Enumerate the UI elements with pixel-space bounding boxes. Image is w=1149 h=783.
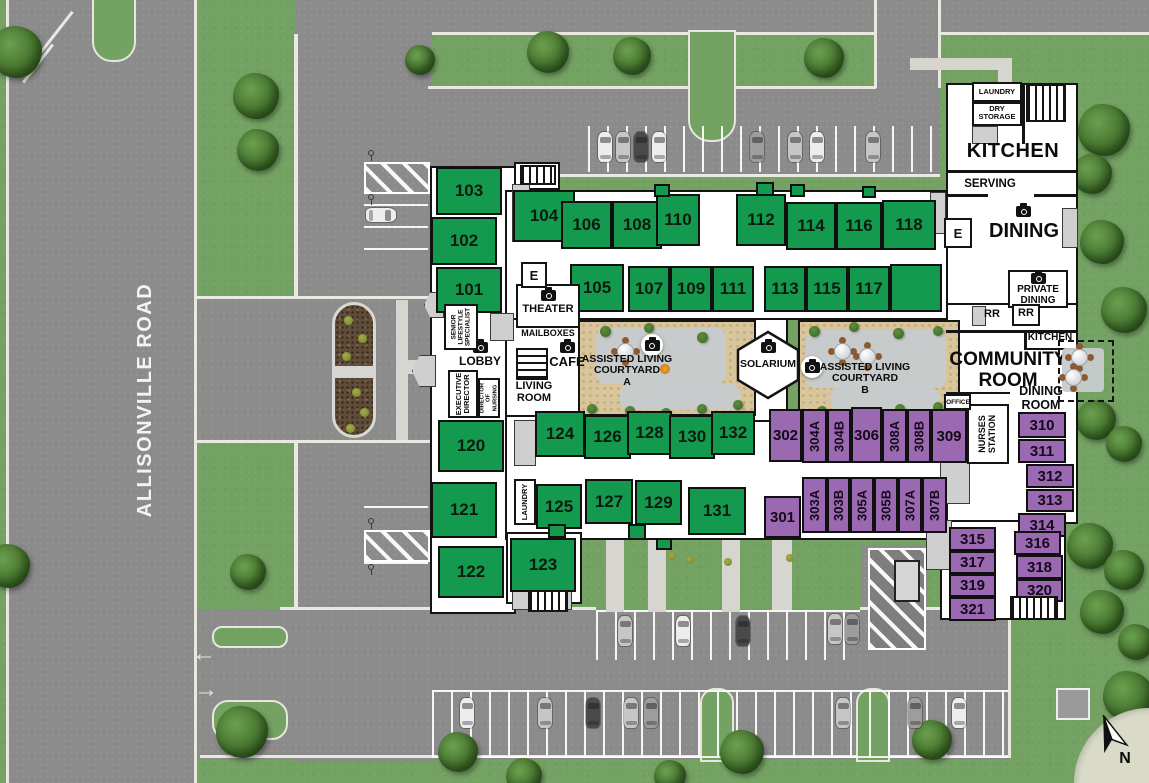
laundry-label: LAUNDRY	[972, 88, 1022, 96]
stairs-icon	[516, 348, 548, 380]
road-arrow-right: →	[194, 676, 218, 704]
camera-icon	[645, 340, 660, 351]
patio-table	[1072, 350, 1087, 365]
car	[845, 614, 859, 644]
room-131[interactable]: 131	[688, 487, 746, 535]
room-305B[interactable]: 305B	[874, 477, 898, 533]
camera-icon[interactable]	[541, 290, 556, 301]
room-312[interactable]: 312	[1026, 464, 1074, 488]
parking-sign-icon	[368, 518, 376, 529]
room-122[interactable]: 122	[438, 546, 504, 598]
rr-label: RR	[1014, 308, 1038, 320]
theater-label: THEATER	[518, 304, 578, 316]
room-bump	[628, 524, 646, 540]
sidewalk	[910, 58, 1012, 70]
parking-sign-icon	[368, 194, 376, 205]
sidewalk	[648, 540, 666, 612]
car	[676, 616, 690, 646]
stairs-icon	[528, 590, 568, 612]
compass-north-label: N	[1114, 750, 1136, 767]
room-301[interactable]: 301	[764, 496, 801, 538]
car	[460, 698, 474, 728]
room-124[interactable]: 124	[535, 411, 585, 457]
room-102[interactable]: 102	[431, 217, 497, 265]
room-310[interactable]: 310	[1018, 412, 1066, 438]
executive-director-label: EXECUTIVE DIRECTOR	[455, 371, 472, 417]
dining-label: DINING	[986, 221, 1062, 243]
room-bump	[862, 186, 876, 198]
car	[538, 698, 552, 728]
car	[652, 132, 666, 162]
entrance-median-island	[212, 626, 288, 648]
patio-table	[1066, 370, 1081, 385]
camera-icon[interactable]	[560, 342, 575, 353]
sidewalk	[772, 538, 792, 610]
sidewalk	[606, 540, 624, 612]
site-plan: ← → ALLISONVILLE ROAD	[0, 0, 1149, 783]
room-318[interactable]: 318	[1016, 555, 1063, 579]
camera-icon[interactable]	[1016, 206, 1031, 217]
room-120[interactable]: 120	[438, 420, 504, 472]
room-309[interactable]: 309	[931, 409, 967, 463]
room-106[interactable]: 106	[561, 201, 612, 249]
room-315[interactable]: 315	[949, 527, 996, 551]
room-bump	[654, 184, 670, 197]
room-308A[interactable]: 308A	[882, 409, 907, 463]
room-303B[interactable]: 303B	[827, 477, 850, 533]
camera-icon[interactable]	[1031, 273, 1046, 284]
road-median-island	[92, 0, 136, 62]
car	[788, 132, 802, 162]
room-115[interactable]: 115	[806, 266, 848, 312]
room-302[interactable]: 302	[769, 409, 802, 462]
room-129[interactable]: 129	[635, 480, 682, 525]
crosswalk	[332, 366, 376, 378]
crosswalk	[396, 300, 408, 440]
room-306[interactable]: 306	[851, 407, 882, 463]
room-313[interactable]: 313	[1026, 489, 1074, 512]
senior-lifestyle-label: SENIOR LIFESTYLE SPECIALIST	[450, 305, 471, 349]
room-121[interactable]: 121	[431, 482, 497, 538]
car	[866, 132, 880, 162]
car	[598, 132, 612, 162]
room-118[interactable]: 118	[882, 200, 936, 250]
room-319[interactable]: 319	[949, 574, 996, 597]
sidewalk	[722, 540, 740, 612]
road-arrow-left: ←	[192, 640, 216, 668]
director-of-nursing-label: DIRECTOR OF NURSING	[479, 380, 498, 416]
stairs-icon	[520, 165, 556, 185]
dry-storage-label: DRY STORAGE	[976, 105, 1018, 121]
room-116[interactable]: 116	[836, 202, 882, 250]
room-bump	[656, 538, 672, 550]
laundry-west-label: LAUNDRY	[521, 484, 529, 520]
room-316[interactable]: 316	[1014, 531, 1061, 555]
lobby-label: LOBBY	[454, 355, 506, 368]
kitchen-label: KITCHEN	[960, 141, 1066, 163]
elevator[interactable]: E	[944, 218, 972, 248]
serving-label: SERVING	[950, 178, 1030, 190]
room-bump	[548, 524, 566, 538]
nurses-station-label: NURSES STATION	[978, 406, 998, 462]
car	[828, 614, 842, 644]
room-bump	[756, 182, 774, 196]
room-305A[interactable]: 305A	[850, 477, 874, 533]
car	[634, 132, 648, 162]
room-112[interactable]: 112	[736, 194, 786, 246]
room-109[interactable]: 109	[670, 266, 712, 312]
solarium-label: SOLARIUM	[736, 359, 800, 370]
utility-pad	[1056, 688, 1090, 720]
camera-icon[interactable]	[761, 342, 776, 353]
mailboxes-label: MAILBOXES	[514, 329, 582, 339]
room-307B[interactable]: 307B	[922, 477, 947, 533]
room-304B[interactable]: 304B	[827, 409, 851, 463]
stairs-icon	[1010, 596, 1058, 620]
car	[366, 208, 396, 222]
room-107[interactable]: 107	[628, 266, 670, 312]
elevator[interactable]: E	[521, 262, 547, 288]
room-103[interactable]: 103	[436, 167, 502, 215]
car	[616, 132, 630, 162]
room-127[interactable]: 127	[585, 479, 633, 524]
room-125[interactable]: 125	[536, 484, 582, 529]
room-307A[interactable]: 307A	[898, 477, 922, 533]
no-parking-hatch	[364, 162, 430, 194]
room-132[interactable]: 132	[711, 411, 755, 455]
car	[624, 698, 638, 728]
room-128[interactable]: 128	[627, 411, 672, 455]
room-130[interactable]: 130	[669, 415, 715, 459]
room-108[interactable]: 108	[612, 201, 662, 249]
room-126[interactable]: 126	[584, 415, 631, 459]
cafe-label: CAFE	[540, 355, 594, 369]
room-bump	[790, 184, 805, 197]
car	[750, 132, 764, 162]
car	[952, 698, 966, 728]
parking-sign-icon	[368, 150, 376, 161]
room-304A[interactable]: 304A	[802, 409, 827, 463]
car	[836, 698, 850, 728]
parking-stalls-middle	[596, 610, 860, 660]
private-dining-label: PRIVATE DINING	[1010, 285, 1066, 307]
room-110[interactable]: 110	[656, 194, 700, 246]
stairs-icon	[1026, 84, 1066, 122]
car	[586, 698, 600, 728]
parking-sign-icon	[368, 564, 376, 575]
living-room-label: LIVING ROOM	[506, 381, 562, 405]
no-parking-hatch	[364, 530, 430, 562]
room-114[interactable]: 114	[786, 202, 836, 250]
car	[618, 616, 632, 646]
car	[736, 616, 750, 646]
dumpster-pad	[894, 560, 920, 602]
room-303A[interactable]: 303A	[802, 477, 827, 533]
car	[908, 698, 922, 728]
room-317[interactable]: 317	[949, 551, 996, 574]
car	[810, 132, 824, 162]
office-label: OFFICE	[945, 399, 971, 406]
car	[644, 698, 658, 728]
patio-table	[835, 344, 850, 359]
room-311[interactable]: 311	[1018, 439, 1066, 463]
room-113[interactable]: 113	[764, 266, 806, 312]
room-321[interactable]: 321	[949, 597, 996, 621]
road-name: ALLISONVILLE ROAD	[110, 280, 180, 520]
room-123[interactable]: 123	[510, 538, 576, 592]
room-119[interactable]	[890, 264, 942, 312]
room-111[interactable]: 111	[712, 266, 754, 312]
room-308B[interactable]: 308B	[907, 409, 931, 463]
room-117[interactable]: 117	[848, 266, 890, 312]
rr-label: RR	[980, 309, 1004, 321]
